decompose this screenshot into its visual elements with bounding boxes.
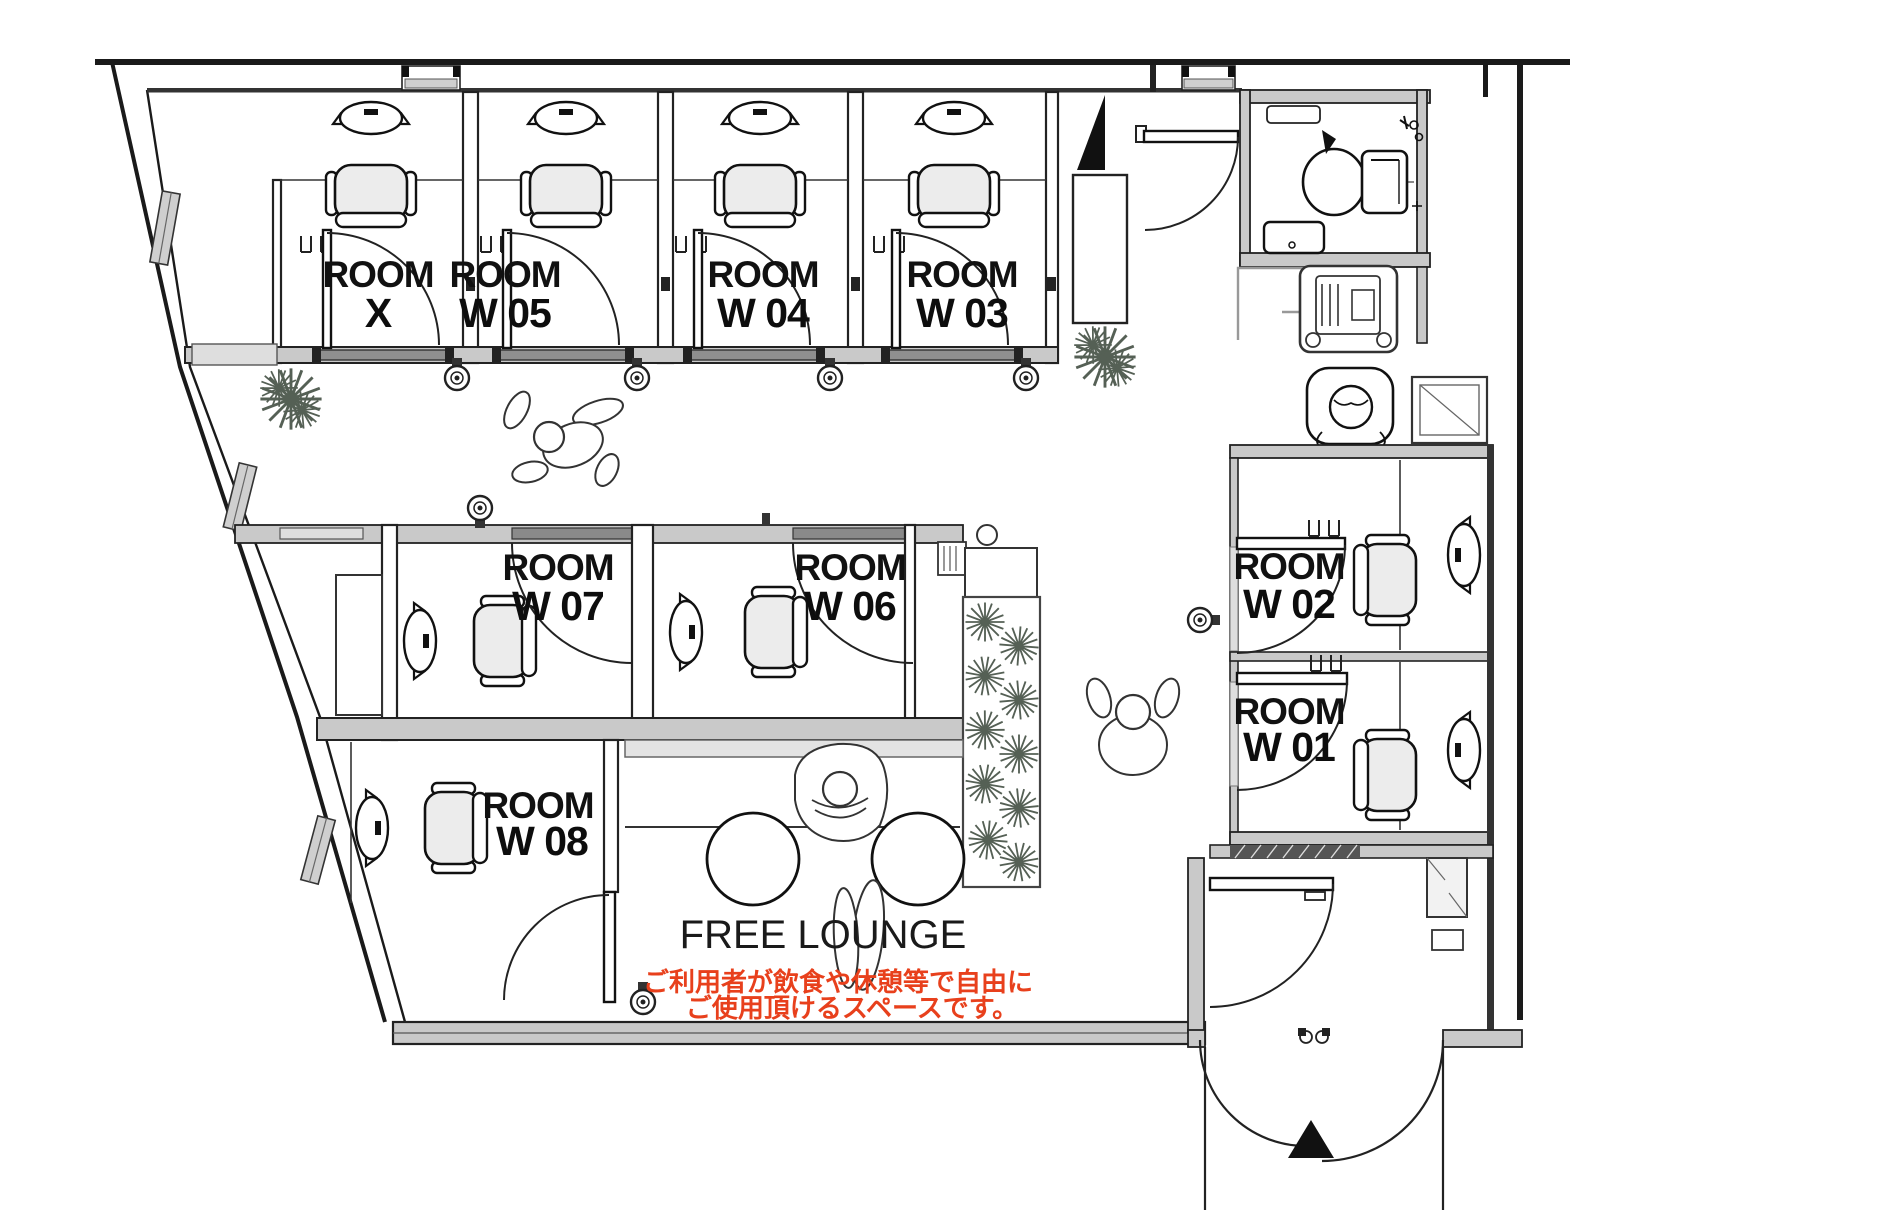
wall — [1487, 445, 1494, 1032]
outer-walls — [95, 59, 1570, 1210]
door-leaf — [694, 230, 702, 348]
room-w02: ROOM W 02 — [1233, 517, 1480, 653]
room-x-name: X — [365, 290, 392, 336]
wc-shelf — [1267, 106, 1320, 123]
door-leaf — [604, 892, 615, 1002]
side-desk — [1238, 268, 1307, 340]
room-w07-label: ROOM — [502, 547, 613, 588]
room-w01-name: W 01 — [1243, 724, 1335, 770]
wall-tick — [762, 513, 770, 526]
wall — [273, 180, 281, 363]
wall — [848, 92, 863, 363]
sink-icon — [977, 525, 997, 545]
wall — [317, 718, 963, 740]
monitor-icon — [528, 102, 604, 134]
wall — [1417, 267, 1427, 343]
wall — [1240, 90, 1430, 103]
planter-strip — [958, 597, 1046, 889]
room-w04-label: ROOM — [707, 254, 818, 295]
wall — [1240, 90, 1250, 267]
wall — [1188, 1030, 1205, 1047]
top-room-row: ROOM X ROOM W 05 ROOM W 04 — [185, 92, 1058, 390]
lounge-counter — [625, 740, 963, 757]
wall — [604, 740, 618, 892]
door-sill — [312, 348, 454, 362]
plant-icon — [1069, 321, 1143, 394]
person-standing-icon — [1082, 676, 1183, 775]
monitor-icon — [916, 102, 992, 134]
wall — [1230, 652, 1493, 661]
wall — [632, 525, 653, 740]
copier-icon — [1300, 266, 1397, 352]
window-icon — [150, 191, 180, 265]
room-w08: ROOM W 08 — [351, 740, 655, 1014]
door-swing-arc — [504, 895, 609, 1000]
entrance-vestibule — [1188, 845, 1522, 1161]
lounge-note-line2: ご使用頂けるスペースです。 — [686, 993, 1018, 1023]
person-walking-icon — [499, 388, 626, 490]
monitor-icon — [722, 102, 798, 134]
room-w02-name: W 02 — [1243, 581, 1335, 627]
wall — [905, 525, 915, 740]
room-w05-label: ROOM — [449, 254, 560, 295]
door-sill — [492, 348, 634, 362]
plant-icon — [255, 364, 328, 436]
mirror-locker — [1427, 858, 1467, 917]
door-closer-icon — [468, 496, 492, 528]
wall — [1046, 92, 1058, 363]
room-w08-name: W 08 — [496, 818, 588, 864]
window-icon — [301, 816, 335, 884]
door-hinge-icon — [1309, 520, 1339, 536]
monitor-icon — [1448, 517, 1480, 593]
office-chair-icon — [326, 165, 416, 227]
entrance-double-door — [1200, 1028, 1443, 1161]
right-wall-stub — [1483, 64, 1488, 97]
room-w03-name: W 03 — [916, 290, 1008, 336]
door-sill — [683, 348, 825, 362]
office-chair-icon — [425, 783, 487, 873]
wall — [1188, 858, 1204, 1032]
door-leaf — [1144, 131, 1238, 142]
office-chair-icon — [1354, 730, 1416, 820]
wall — [658, 92, 673, 363]
wall — [1417, 90, 1427, 267]
door-swing-arc — [1322, 1040, 1443, 1161]
room-x-label: ROOM — [322, 254, 433, 295]
top-outer-wall — [95, 59, 1570, 65]
top-wall-vent — [1182, 66, 1235, 90]
door-leaf — [1237, 673, 1347, 684]
door-track — [793, 528, 913, 539]
room-w03-label: ROOM — [906, 254, 1017, 295]
storage-cabinet — [1412, 377, 1487, 443]
wall — [1230, 445, 1493, 458]
floor-plan: ROOM X ROOM W 05 ROOM W 04 — [0, 0, 1890, 1212]
entry-corridor — [1069, 95, 1238, 394]
room-w06: ROOM W 06 — [670, 543, 913, 677]
wc-counter — [1264, 222, 1324, 253]
entrance-triangle-icon — [1288, 1120, 1334, 1158]
door-track — [512, 528, 632, 539]
wall — [1230, 832, 1493, 845]
round-table-icon — [707, 813, 799, 905]
office-chair-icon — [715, 165, 805, 227]
round-table-icon — [872, 813, 964, 905]
wall — [382, 525, 397, 740]
monitor-icon — [356, 790, 388, 866]
locker-cabinet — [1073, 175, 1127, 323]
floor-plan-drawing: ROOM X ROOM W 05 ROOM W 04 — [0, 0, 1890, 1212]
top-wall-vent — [402, 66, 460, 90]
monitor-icon — [404, 603, 436, 679]
right-outer-wall — [1517, 62, 1523, 1020]
room-w06-label: ROOM — [794, 547, 905, 588]
north-marker-triangle-icon — [1077, 95, 1105, 170]
office-chair-icon — [1354, 535, 1416, 625]
person-at-copier-icon — [1307, 368, 1393, 446]
door-handle — [1305, 892, 1325, 900]
room-w04-name: W 04 — [717, 290, 810, 336]
monitor-icon — [333, 102, 409, 134]
office-chair-icon — [745, 587, 807, 677]
door-swing-arc — [1145, 137, 1238, 230]
wall — [1443, 1030, 1522, 1047]
cabinet — [336, 575, 382, 715]
door-swing-arc — [1200, 1040, 1306, 1146]
door-swing-arc — [1210, 884, 1333, 1007]
top-inner-wall — [147, 88, 1242, 93]
monitor-icon — [670, 594, 702, 670]
room-w07-name: W 07 — [512, 583, 604, 629]
door-leaf — [892, 230, 900, 348]
room-w01: ROOM W 01 — [1233, 655, 1480, 820]
door-closer-icon — [1188, 608, 1220, 632]
office-chair-icon — [521, 165, 611, 227]
toilet-room — [1240, 90, 1430, 267]
room-w05-name: W 05 — [459, 290, 551, 336]
lounge-title: FREE LOUNGE — [680, 913, 967, 957]
counter — [965, 548, 1037, 603]
toilet-icon — [1303, 116, 1423, 215]
office-chair-icon — [909, 165, 999, 227]
monitor-icon — [1448, 712, 1480, 788]
door-leaf — [1210, 878, 1333, 890]
door-sill — [881, 348, 1023, 362]
hatched-wall — [1230, 845, 1360, 858]
room-w06-name: W 06 — [804, 583, 896, 629]
copier-area — [1238, 266, 1487, 446]
floor-box — [1432, 930, 1463, 950]
room-w07: ROOM W 07 — [404, 543, 632, 686]
appliance-icon — [938, 542, 966, 575]
